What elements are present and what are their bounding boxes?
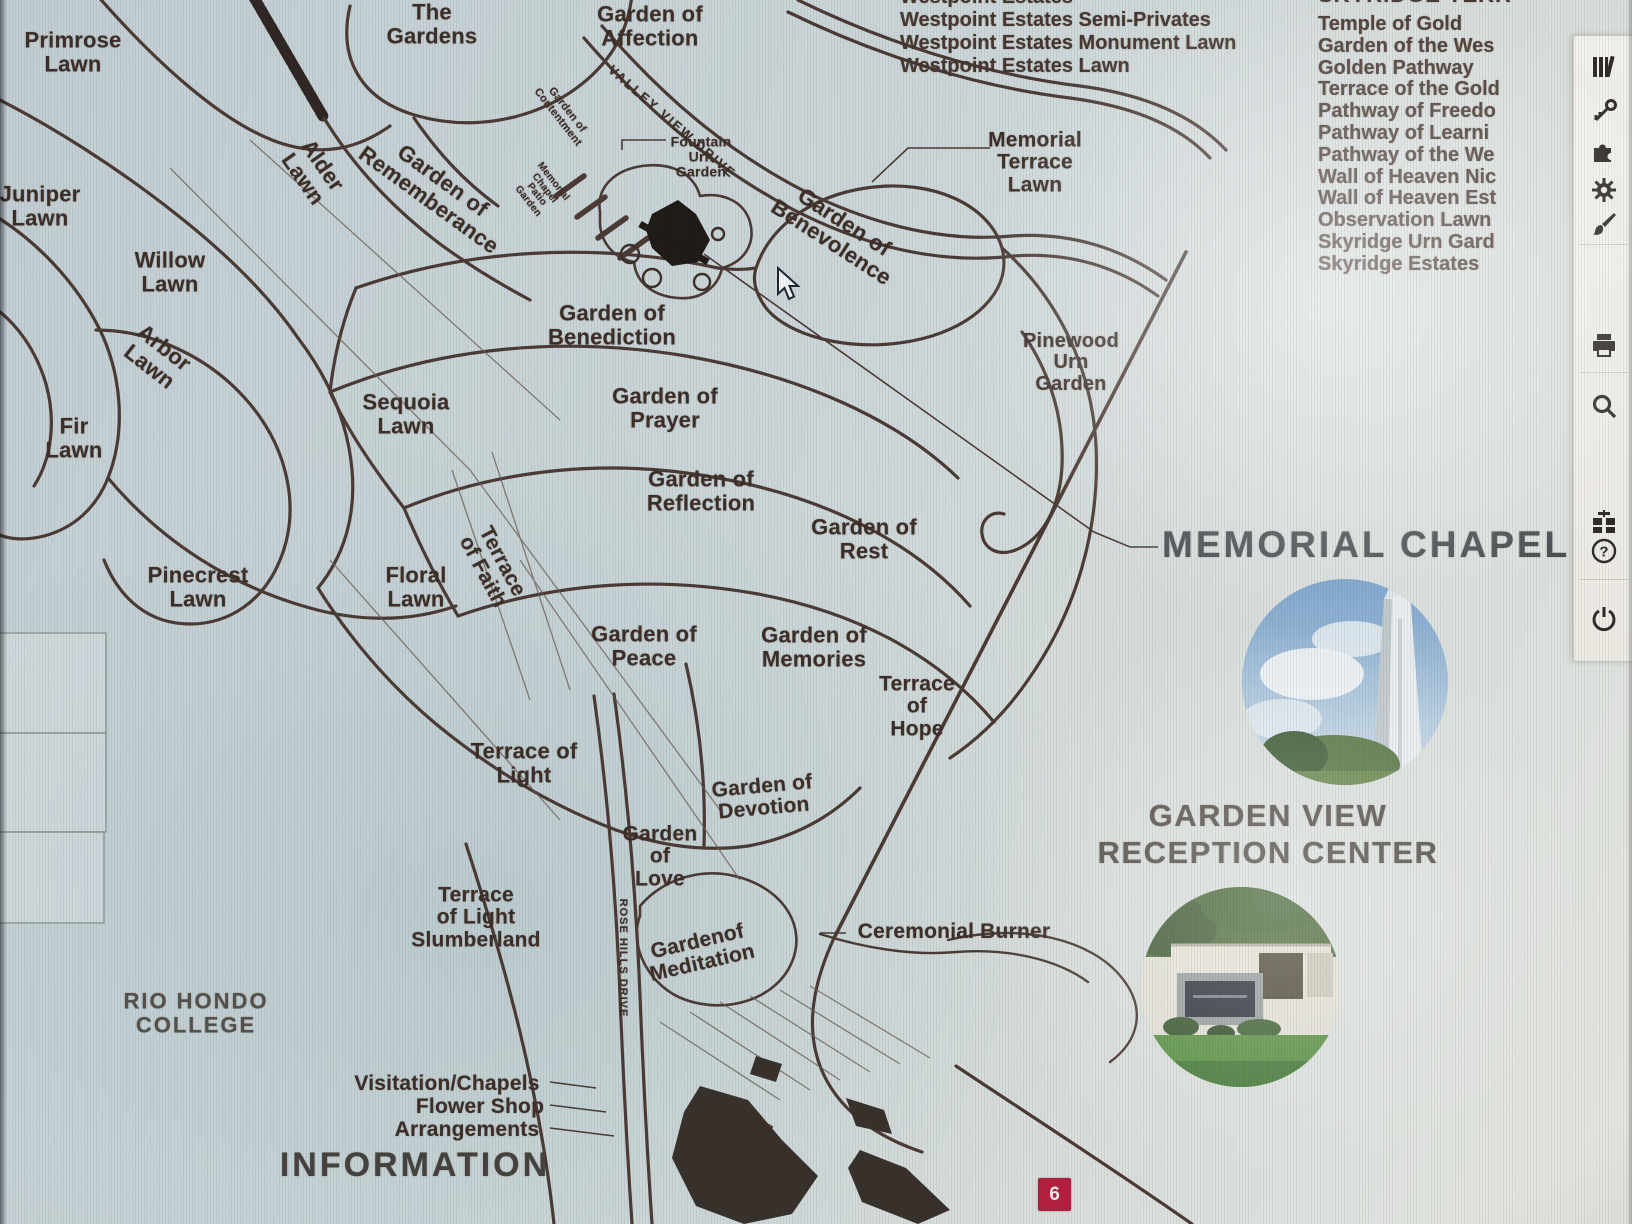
- settings-icon[interactable]: [1588, 174, 1620, 206]
- map-label: Primrose Lawn: [25, 28, 122, 75]
- map-label: Fountain Urn Garden: [671, 135, 732, 180]
- garden-view-line1: GARDEN VIEW: [1048, 798, 1488, 834]
- skyridge-heading: SKYRIDGE TERR: [1318, 0, 1512, 6]
- help-icon[interactable]: ?: [1588, 535, 1620, 567]
- westpoint-list: Westpoint EstatesWestpoint Estates Semi-…: [900, 0, 1236, 78]
- map-label: Garden of Rememberance: [355, 122, 517, 258]
- memorial-chapel-photo: [1242, 579, 1448, 785]
- garden-view-heading: GARDEN VIEW RECEPTION CENTER: [1048, 798, 1488, 872]
- map-label: RIO HONDO COLLEGE: [123, 989, 268, 1036]
- map-label: INFORMATION: [280, 1147, 550, 1183]
- map-label: Fir Lawn: [45, 414, 102, 461]
- map-label: Sequoia Lawn: [363, 390, 450, 437]
- map-label: Garden of Prayer: [612, 384, 718, 431]
- map-label: Floral Lawn: [385, 563, 446, 610]
- map-label: Willow Lawn: [135, 248, 206, 295]
- skyridge-section: SKYRIDGE TERR Temple of GoldGarden of th…: [1318, 0, 1512, 276]
- map-label: Terrace of Hope: [879, 673, 955, 740]
- map-label: Alder Lawn: [277, 135, 348, 209]
- map-label: The Gardens: [387, 0, 478, 47]
- section-list-item: Westpoint Estates Monument Lawn: [900, 32, 1236, 55]
- map-label: Garden of Love: [623, 823, 698, 890]
- toolbar-divider: [1580, 372, 1627, 373]
- section-list-item: Skyridge Urn Gard: [1318, 232, 1512, 254]
- section-list-item: Terrace of the Gold: [1318, 79, 1512, 101]
- section-list-item: Observation Lawn: [1318, 210, 1512, 232]
- reception-center-photo: [1141, 887, 1341, 1087]
- map-label: Garden of Contentment: [531, 79, 593, 149]
- paintbrush-icon[interactable]: [1588, 208, 1620, 240]
- map-label: ROSE HILLS DRIVE: [616, 899, 628, 1018]
- map-label: Arbor Lawn: [119, 320, 196, 395]
- skyridge-list: Temple of GoldGarden of the WesGolden Pa…: [1318, 14, 1512, 276]
- section-list-item: Westpoint Estates Lawn: [900, 55, 1236, 78]
- toolbar-divider: [1580, 579, 1627, 580]
- printer-icon[interactable]: [1588, 330, 1620, 362]
- map-label: Memorial Terrace Lawn: [988, 129, 1082, 196]
- map-label: Pinecrest Lawn: [148, 563, 249, 610]
- key-icon[interactable]: [1588, 94, 1620, 126]
- map-label: Juniper Lawn: [0, 182, 80, 229]
- gift-icon[interactable]: [1588, 506, 1620, 538]
- section-list-item: Pathway of the We: [1318, 145, 1512, 167]
- map-label: Garden of Rest: [811, 515, 917, 562]
- library-icon[interactable]: [1588, 51, 1620, 83]
- puzzle-icon[interactable]: [1588, 136, 1620, 168]
- section-list-item: Temple of Gold: [1318, 14, 1512, 36]
- section-list-item: Golden Pathway: [1318, 58, 1512, 80]
- toolbar-divider: [1580, 244, 1627, 245]
- map-label: Pinewood Urn Garden: [1023, 331, 1119, 395]
- map-label: Terrace of Light Slumberland: [411, 884, 540, 951]
- map-badge-6: 6: [1038, 1178, 1071, 1211]
- map-label: Garden of Benediction: [548, 301, 676, 348]
- map-label: Terrace of Light: [471, 739, 578, 786]
- section-list-item: Westpoint Estates: [900, 0, 1236, 9]
- map-label: Garden of Memories: [761, 623, 867, 670]
- map-label: Gardenof Meditation: [643, 919, 757, 987]
- kiosk-map-screen: Primrose LawnJuniper LawnWillow LawnArbo…: [0, 0, 1632, 1224]
- section-list-item: Pathway of Learni: [1318, 123, 1512, 145]
- power-icon[interactable]: [1588, 603, 1620, 635]
- map-label: Garden of Peace: [591, 622, 697, 669]
- map-label: Garden of Devotion: [711, 771, 816, 825]
- map-label: Garden of Reflection: [647, 467, 755, 514]
- map-label: Flower Shop: [416, 1096, 544, 1118]
- memorial-chapel-heading: MEMORIAL CHAPEL: [1162, 524, 1570, 566]
- section-list-item: Wall of Heaven Nic: [1318, 167, 1512, 189]
- search-icon[interactable]: [1588, 390, 1620, 422]
- mouse-cursor: [772, 263, 806, 303]
- map-label: Terrace of Faith: [454, 522, 530, 611]
- map-label: Visitation/Chapels: [354, 1073, 539, 1095]
- section-list-item: Pathway of Freedo: [1318, 101, 1512, 123]
- map-label: Memorial Chapel Patio Garden: [509, 161, 571, 223]
- map-label: Garden of Affection: [597, 2, 703, 49]
- garden-view-line2: RECEPTION CENTER: [1048, 834, 1488, 872]
- svg-text:?: ?: [1599, 544, 1608, 561]
- kiosk-toolbar: ?: [1573, 35, 1632, 662]
- map-label: Parking: [730, 1101, 776, 1135]
- map-label: Arrangements: [395, 1119, 540, 1141]
- section-list-item: Wall of Heaven Est: [1318, 188, 1512, 210]
- map-label: Ceremonial Burner: [858, 921, 1050, 943]
- section-list-item: Skyridge Estates: [1318, 254, 1512, 276]
- section-list-item: Garden of the Wes: [1318, 36, 1512, 58]
- section-list-item: Westpoint Estates Semi-Privates: [900, 9, 1236, 32]
